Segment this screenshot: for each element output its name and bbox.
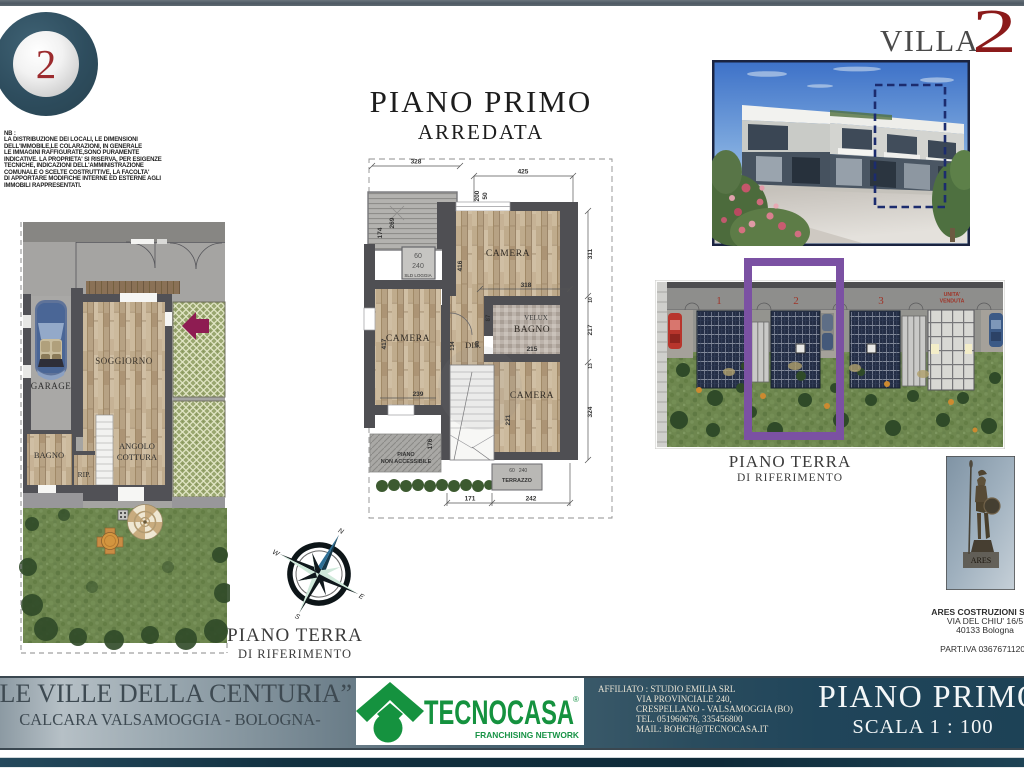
- svg-text:VENDUTA: VENDUTA: [940, 299, 965, 305]
- svg-text:VELUX: VELUX: [524, 314, 548, 322]
- svg-text:174: 174: [377, 227, 384, 238]
- svg-text:ARES: ARES: [971, 556, 991, 565]
- svg-text:SOGGIORNO: SOGGIORNO: [95, 356, 153, 366]
- svg-text:60: 60: [414, 253, 422, 260]
- svg-text:134: 134: [450, 340, 456, 350]
- svg-text:171: 171: [465, 496, 476, 503]
- svg-text:217: 217: [587, 324, 594, 335]
- svg-text:176: 176: [427, 438, 434, 449]
- svg-text:417: 417: [381, 338, 388, 349]
- svg-text:FRANCHISING NETWORK: FRANCHISING NETWORK: [475, 730, 580, 740]
- svg-text:200: 200: [474, 190, 481, 201]
- svg-text:TECNOCASA: TECNOCASA: [424, 694, 574, 732]
- svg-text:416: 416: [457, 260, 464, 271]
- svg-text:BAGNO: BAGNO: [34, 450, 64, 460]
- svg-text:RIP.: RIP.: [78, 470, 91, 479]
- svg-text:UNITA': UNITA': [944, 292, 961, 298]
- svg-text:GARAGE: GARAGE: [31, 381, 72, 391]
- svg-text:240: 240: [412, 263, 424, 270]
- svg-text:3: 3: [878, 295, 884, 307]
- svg-text:311: 311: [587, 248, 594, 259]
- svg-text:W: W: [272, 549, 281, 559]
- svg-text:240: 240: [519, 468, 528, 474]
- svg-text:87: 87: [486, 314, 492, 321]
- svg-text:13: 13: [588, 363, 594, 369]
- svg-text:N: N: [337, 527, 346, 536]
- svg-text:10: 10: [588, 297, 594, 303]
- svg-text:242: 242: [526, 496, 537, 503]
- svg-text:NON ACCESSIBILE: NON ACCESSIBILE: [381, 459, 432, 465]
- svg-text:CAMERA: CAMERA: [386, 334, 430, 344]
- svg-text:E: E: [357, 593, 365, 602]
- svg-text:ANGOLO: ANGOLO: [119, 441, 155, 451]
- svg-text:®: ®: [573, 695, 579, 704]
- svg-text:TERRAZZO: TERRAZZO: [502, 478, 533, 484]
- svg-text:BAGNO: BAGNO: [514, 325, 550, 335]
- svg-text:1: 1: [716, 295, 722, 307]
- svg-text:50: 50: [482, 192, 489, 200]
- svg-text:318: 318: [521, 282, 532, 289]
- svg-text:CAMERA: CAMERA: [486, 249, 530, 259]
- svg-text:269: 269: [389, 217, 396, 228]
- svg-text:COTTURA: COTTURA: [117, 452, 158, 462]
- svg-text:60: 60: [509, 468, 515, 474]
- svg-text:425: 425: [518, 169, 529, 176]
- svg-text:239: 239: [413, 391, 424, 398]
- svg-text:324: 324: [587, 406, 594, 417]
- svg-text:328: 328: [411, 159, 422, 166]
- svg-text:S: S: [293, 613, 301, 621]
- svg-text:SLD LOGGIA: SLD LOGGIA: [404, 273, 431, 278]
- svg-text:215: 215: [527, 346, 538, 353]
- svg-text:PIANO: PIANO: [397, 452, 415, 458]
